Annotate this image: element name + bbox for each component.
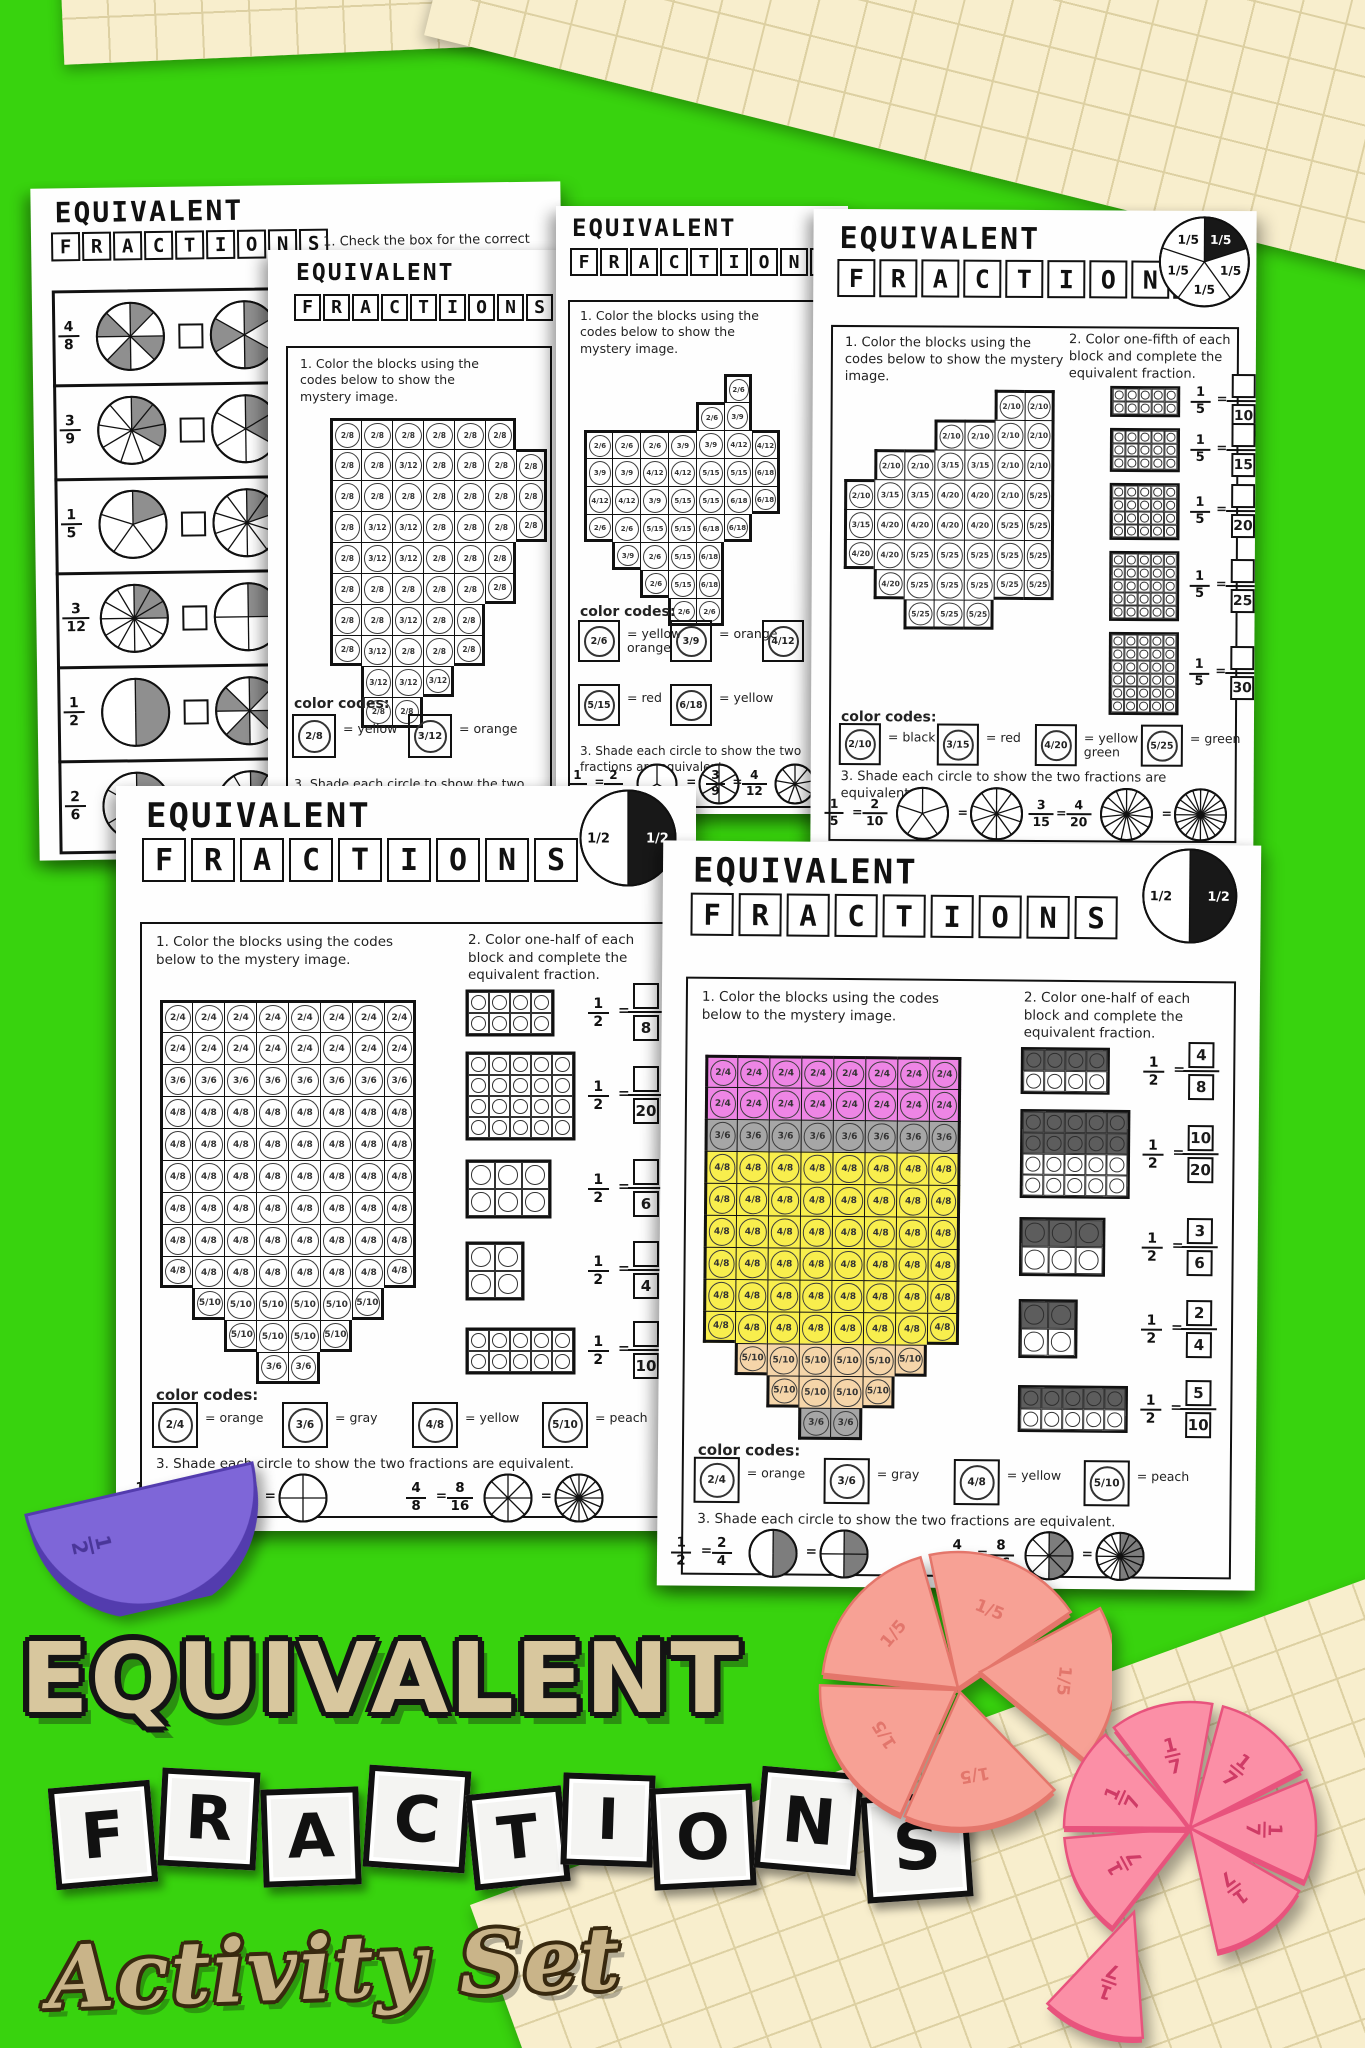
block-cell-circle [1079,1223,1099,1243]
code-fraction: 6/18 [676,690,707,721]
grid-cell: 2/6 [640,430,668,458]
grid-cell: 3/12 [392,542,423,573]
block-cell-circle [1165,663,1174,672]
header-pie: 1/21/2 [1140,847,1239,946]
grid-cell: 3/12 [361,635,392,666]
color-code-item: 6/18 [670,684,712,726]
grid-cell: 5/25 [1024,510,1054,540]
grid-cell-fraction: 2/8 [457,452,484,479]
grid-cell: 3/6 [352,1064,384,1096]
block-cell-circle [1023,1411,1038,1426]
grid-cell: 2/4 [384,1000,416,1032]
block-cell [1125,456,1138,469]
block-cell-circle [1127,607,1136,616]
grid-cell: 3/6 [801,1120,833,1152]
row-fraction-circle [97,488,170,561]
grid-cell: 3/6 [798,1408,830,1440]
answer-box-numerator [1232,374,1256,398]
code-color-name: = orange [459,722,521,736]
grid-cell: 2/4 [160,1032,192,1064]
block-cell-circle [513,1078,528,1093]
grid-cell-fraction: 2/6 [645,573,668,595]
grid-cell: 4/8 [863,1280,895,1312]
block-cell [1138,606,1151,619]
grid-cell-fraction: 3/12 [395,452,422,479]
grid-cell: 5/10 [863,1344,895,1376]
grid-cell-fraction: 4/8 [867,1219,895,1247]
row-fraction-circle [98,582,171,655]
grid-cell-fraction: 4/8 [291,1131,318,1158]
block-cell [1112,498,1125,511]
code-color-name: = yellow [1007,1468,1069,1482]
grid-cell-fraction: 2/10 [879,454,903,478]
equals-sign: = [732,775,742,789]
grid-cell: 4/8 [767,1247,799,1279]
row-fraction-circle [95,394,168,467]
letter-tile: F [837,259,875,297]
grid-cell: 4/8 [288,1096,320,1128]
block-cell [1152,389,1165,402]
grid-cell-fraction: 4/8 [738,1314,766,1342]
grid-cell: 4/12 [752,430,780,458]
answer-fraction: 6 [628,1159,664,1217]
grid-cell: 4/8 [927,1313,959,1345]
answer-checkbox [182,605,207,630]
grid-cell-fraction: 2/4 [323,1005,350,1031]
block-cell [531,1075,552,1096]
block-cell [468,1117,489,1138]
grid-cell-fraction: 4/8 [291,1099,318,1126]
block-cell-circle [1114,581,1123,590]
block-cell-circle [513,1016,528,1031]
grid-cell-fraction: 3/6 [868,1123,896,1151]
grid-cell: 4/8 [192,1224,224,1256]
pair-fraction-b: 412 [742,769,767,799]
exercise-block [1023,1050,1107,1093]
letter-tile: O [978,895,1021,938]
block-cell-circle [1114,487,1123,496]
letter-tile: T [690,248,718,276]
grid-cell: 4/8 [735,1247,767,1279]
block-cell [1151,606,1164,619]
block-cell [1104,1388,1125,1409]
block-cell [1125,443,1138,456]
block-cell [1021,1302,1048,1329]
grid-cell: 4/8 [256,1224,288,1256]
answer-box-denominator: 4 [633,1273,659,1299]
grid-cell-fraction: 3/6 [195,1067,222,1094]
grid-cell: 4/8 [896,1216,928,1248]
block-cell [1150,661,1163,674]
answer-fraction: 20 [628,1066,664,1124]
letter-tile: A [786,893,829,936]
color-code-box: 5/10 [1083,1460,1129,1506]
svg-text:1/5: 1/5 [1220,264,1242,278]
grid-cell-fraction: 4/8 [195,1163,222,1190]
fraction-denominator: 6 [65,807,86,823]
color-code-box: 3/6 [823,1458,869,1504]
grid-cell-fraction: 4/8 [739,1218,767,1246]
grid-cell-fraction: 4/12 [615,489,639,513]
block-cell [1065,1133,1086,1154]
grid-cell: 4/8 [895,1280,927,1312]
grid-cell-fraction: 3/6 [836,1123,864,1151]
grid-cell: 2/8 [423,604,454,635]
grid-cell: 4/8 [384,1192,416,1224]
grid-cell-fraction: 2/10 [997,483,1023,509]
grid-cell: 2/8 [361,418,392,449]
block-cell [1113,388,1126,401]
grid-cell-fraction: 2/8 [364,423,391,448]
grid-cell-fraction: 4/8 [355,1131,382,1158]
block-cell-circle [1140,501,1149,510]
grid-cell-fraction: 2/8 [426,514,453,541]
answer-box-numerator: 3 [1187,1218,1213,1244]
grid-cell-fraction: 4/8 [738,1282,766,1310]
block-cell [1124,647,1137,660]
fraction-denominator: 5 [1190,513,1210,528]
block-cell [1124,660,1137,673]
pair-circle-b [969,786,1025,842]
fraction-numerator: 2 [604,769,623,785]
color-code-item: 2/6 [578,620,620,662]
grid-cell: 4/8 [320,1256,352,1288]
grid-cell-fraction: 2/8 [519,454,543,479]
block-cell-circle [1088,1157,1103,1172]
block-cell-circle [1127,500,1136,509]
grid-cell-fraction: 5/25 [1027,513,1050,539]
pair-fraction-a: 12 [671,1536,691,1569]
block-cell-circle [1166,514,1175,523]
grid-cell: 2/4 [705,1087,737,1119]
block-cell-circle [1166,446,1175,455]
color-code-box: 4/8 [412,1402,458,1448]
grid-cell-fraction: 4/8 [387,1099,412,1126]
block-cell-circle [1113,688,1122,697]
block-cell-circle [534,1057,549,1072]
block-cell-circle [1166,556,1175,565]
grid-cell-fraction: 4/8 [259,1099,286,1126]
letter-tile: I [387,838,431,882]
grid-cell: 4/8 [703,1247,735,1279]
block-cell-circle [1140,459,1149,468]
block-cell-circle [1113,662,1122,671]
worksheet-page-mystery-image-halves-blank: EQUIVALENTFRACTIONS1/21/21. Color the bl… [116,786,696,1531]
grid-cell: 2/4 [737,1055,769,1087]
grid-cell: 4/8 [192,1160,224,1192]
pair-fraction-a: 39 [706,769,725,799]
block-cell [1085,1175,1106,1196]
worksheet-title: EQUIVALENT [296,260,454,286]
grid-cell-fraction: 2/8 [426,452,453,479]
exercise-base-fraction: 12 [1143,1054,1164,1088]
grid-cell-fraction: 4/8 [708,1250,734,1278]
grid-cell-fraction: 3/12 [364,638,391,665]
grid-cell: 2/4 [929,1057,961,1089]
grid-cell-fraction: 4/8 [709,1186,735,1214]
block-cell-circle [1025,1135,1040,1150]
grid-cell-fraction: 2/4 [868,1091,896,1119]
grid-cell-fraction: 4/8 [291,1195,318,1222]
grid-cell: 3/15 [964,450,994,480]
block-cell-circle [1153,595,1162,604]
color-code-item: 2/4 [693,1457,739,1503]
fraction-numerator: 4 [406,1481,426,1499]
block-cell [489,1351,510,1372]
pair-circle-a [1098,786,1154,842]
block-cell [1138,580,1151,593]
exercise-base-fraction: 12 [588,1254,609,1288]
grid-cell: 4/20 [934,479,964,509]
grid-cell-fraction: 4/8 [770,1315,798,1343]
fraction-denominator: 9 [60,431,81,447]
grid-cell-fraction: 2/4 [836,1061,864,1087]
block-cell-circle [1109,1136,1124,1151]
grid-cell-fraction: 5/25 [967,543,993,569]
fraction-bar [628,1187,664,1189]
grid-cell: 4/8 [800,1184,832,1216]
fraction-denominator: 2 [588,1014,609,1030]
block-cell-circle [1165,676,1174,685]
grid-cell-fraction: 4/8 [259,1195,286,1222]
row-fraction-label: 12 [63,695,84,729]
grid-cell-fraction: 4/8 [323,1131,350,1158]
letter-tile: I [1047,260,1085,298]
block-cell [531,1096,552,1117]
instruction-2: 2. Color one-half of each block and comp… [468,932,666,985]
grid-cell-fraction: 2/8 [488,452,515,479]
block-cell [1124,699,1137,712]
grid-cell: 4/8 [352,1224,384,1256]
grid-cell-fraction: 3/6 [355,1067,382,1094]
block-cell-circle [555,1120,570,1135]
block-cell-circle [1141,404,1150,413]
code-fraction: 2/8 [298,720,331,753]
grid-cell: 4/8 [703,1279,735,1311]
block-cell [1126,401,1139,414]
color-code-item: 3/12 [408,714,452,758]
grid-cell-fraction: 5/15 [671,517,695,541]
block-cell [1151,525,1164,538]
grid-cell: 4/8 [160,1192,192,1224]
grid-cell-fraction: 5/25 [997,573,1023,596]
block-cell [531,992,552,1013]
grid-cell-fraction: 3/6 [900,1124,928,1152]
instruction-1: 1. Color the blocks using the codes belo… [580,308,788,357]
letter-tile: F [570,248,598,276]
fraction-denominator: 2 [588,1352,609,1368]
block-cell-circle [471,995,486,1010]
block-cell-circle [1067,1115,1082,1130]
grid-cell-fraction: 2/8 [457,483,484,510]
pair-fraction-a: 15 [824,797,843,828]
block-cell-circle [1140,595,1149,604]
fraction-bar [1227,400,1257,402]
grid-cell-fraction: 4/8 [323,1099,350,1126]
grid-cell-fraction: 4/8 [165,1259,191,1284]
grid-cell-fraction: 3/6 [804,1123,832,1151]
grid-cell-fraction: 4/8 [165,1227,191,1254]
grid-cell-fraction: 2/4 [900,1092,928,1120]
grid-cell: 2/8 [485,418,516,449]
answer-box-numerator: 10 [1188,1125,1214,1151]
code-color-name: = peach [595,1411,657,1425]
block-cell-circle [1140,608,1149,617]
answer-box-numerator: 5 [1185,1380,1211,1406]
grid-cell-fraction: 4/8 [835,1155,863,1183]
svg-text:7: 7 [1241,1823,1263,1837]
answer-box-numerator [633,1241,659,1267]
grid-cell-fraction: 5/10 [865,1379,890,1404]
block-cell-circle [1024,1305,1044,1325]
pair-fraction-b: 816 [447,1481,474,1514]
grid-cell: 3/6 [705,1119,737,1151]
fraction-numerator: 1 [1143,1054,1164,1072]
fraction-numerator: 3 [59,413,80,431]
grid-cell: 2/8 [330,418,361,449]
color-code-box: 4/12 [762,620,804,662]
row-fraction-circle [95,394,168,467]
grid-cell-fraction: 4/8 [899,1252,927,1280]
grid-cell: 4/8 [352,1096,384,1128]
block-cell-circle [1114,555,1123,564]
block-cell [1138,567,1151,580]
grid-cell: 2/8 [330,449,361,480]
block-cell-circle [1065,1391,1080,1406]
block-cell-circle [471,1016,486,1031]
answer-box-numerator [1231,423,1255,447]
block-cell-circle [1166,569,1175,578]
scene: EQUIVALENTFRACTIONS1. Check the box for … [0,0,1365,2048]
block-cell [1163,648,1176,661]
block-cell-circle [1139,676,1148,685]
letter-tile: S [534,838,578,882]
grid-cell-fraction: 4/8 [323,1163,350,1190]
svg-text:1/2: 1/2 [1207,890,1230,905]
grid-cell: 2/8 [330,480,361,511]
grid-cell-fraction: 2/4 [291,1035,318,1062]
block-cell [489,1054,510,1075]
grid-cell-fraction: 4/8 [930,1284,955,1312]
grid-cell: 2/8 [330,542,361,573]
exercise-base-fraction: 15 [1190,570,1210,602]
block-cell [1163,661,1176,674]
grid-cell: 2/8 [454,480,485,511]
instruction-2: 2. Color one-half of each block and comp… [1024,990,1226,1044]
block-cell [489,1075,510,1096]
block-cell-circle [1166,501,1175,510]
grid-cell-fraction: 4/8 [323,1195,350,1222]
fraction-numerator: 1 [1142,1230,1163,1248]
color-code-box: 5/25 [1141,725,1183,767]
fraction-numerator: 1 [588,1334,609,1352]
grid-cell-fraction: 5/10 [802,1347,830,1375]
grid-cell-fraction: 2/4 [740,1090,768,1118]
grid-cell-fraction: 2/8 [457,607,481,634]
code-fraction: 3/6 [288,1408,323,1443]
grid-cell-fraction: 2/8 [488,514,515,541]
fraction-numerator: 3 [62,601,90,619]
block-cell [510,1075,531,1096]
block-cell [1163,674,1176,687]
grid-cell-fraction: 2/6 [729,379,749,402]
answer-fraction: 30 [1225,646,1257,700]
block-cell-circle [1109,1115,1124,1130]
grid-cell: 4/8 [863,1312,895,1344]
code-fraction: 2/10 [844,729,875,760]
grid-cell-fraction: 5/25 [967,573,993,599]
grid-cell-fraction: 4/8 [227,1195,254,1222]
block-cell-circle [498,1274,518,1294]
letter-tile: F [690,893,733,936]
block-cell [1083,1409,1104,1430]
grid-cell: 6/18 [696,570,724,598]
grid-cell-fraction: 2/8 [364,607,391,634]
block-cell [1111,660,1124,673]
grid-cell: 5/10 [862,1376,894,1408]
grid-cell-fraction: 3/12 [426,669,450,693]
grid-cell: 3/6 [865,1120,897,1152]
block-cell-circle [1152,702,1161,711]
block-cell [1137,635,1150,648]
grid-cell: 4/8 [384,1096,416,1128]
block-cell [1112,511,1125,524]
grid-cell-fraction: 5/15 [671,573,695,597]
worksheet-title: EQUIVALENT [572,214,737,242]
block-cell [1139,402,1152,415]
pair-circle-a [746,1527,798,1579]
grid-cell-fraction: 2/4 [804,1091,832,1119]
grid-cell-fraction: 3/6 [227,1067,254,1094]
fraction-bar [1226,510,1257,512]
block-cell [1138,512,1151,525]
block-cell-circle [1051,1305,1071,1325]
grid-cell-fraction: 3/12 [395,514,422,541]
block-cell-circle [1088,1178,1103,1193]
grid-cell-fraction: 2/4 [900,1061,928,1087]
exercise-base-fraction: 12 [588,1079,609,1113]
answer-box-denominator: 30 [1230,676,1254,700]
code-color-name: = yellow [719,691,781,705]
answer-checkbox [183,699,208,724]
grid-cell: 4/8 [927,1281,959,1313]
block-cell-circle [555,1057,570,1072]
grid-cell-fraction: 5/25 [908,602,932,625]
block-cell-circle [1153,514,1162,523]
block-cell [1164,444,1177,457]
grid-cell: 3/9 [584,458,612,486]
row-fraction-circle [99,676,172,749]
answer-fraction: 48 [1183,1042,1220,1100]
block-cell [1151,512,1164,525]
answer-fraction: 24 [1181,1300,1218,1358]
block-cell [489,1117,510,1138]
block-cell-circle [492,1016,507,1031]
grid-cell-fraction: 5/25 [1027,483,1050,509]
block-cell-circle [1154,391,1163,400]
grid-cell: 2/4 [320,1032,352,1064]
grid-cell: 4/8 [799,1248,831,1280]
grid-cell: 2/8 [454,511,485,542]
fraction-bar [1225,672,1256,674]
grid-cell: 3/6 [384,1064,416,1096]
block-cell-circle [1046,1156,1061,1171]
svg-text:1/2: 1/2 [1150,889,1173,904]
code-color-name: = yellow green [1084,731,1146,759]
code-fraction: 3/15 [942,729,973,760]
code-fraction: 3/6 [829,1463,864,1498]
grid-cell: 4/8 [704,1183,736,1215]
